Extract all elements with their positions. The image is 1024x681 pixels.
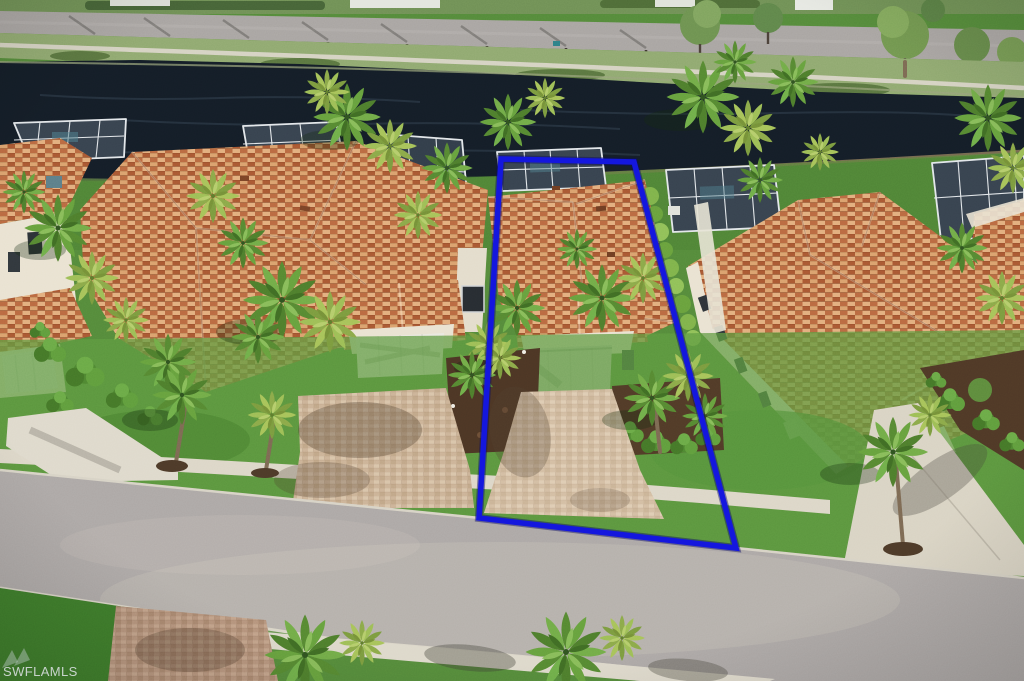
- watermark-text: SWFLAMLS: [3, 664, 78, 679]
- aerial-photo: SWFLAMLS: [0, 0, 1024, 681]
- vignette: [0, 0, 1024, 681]
